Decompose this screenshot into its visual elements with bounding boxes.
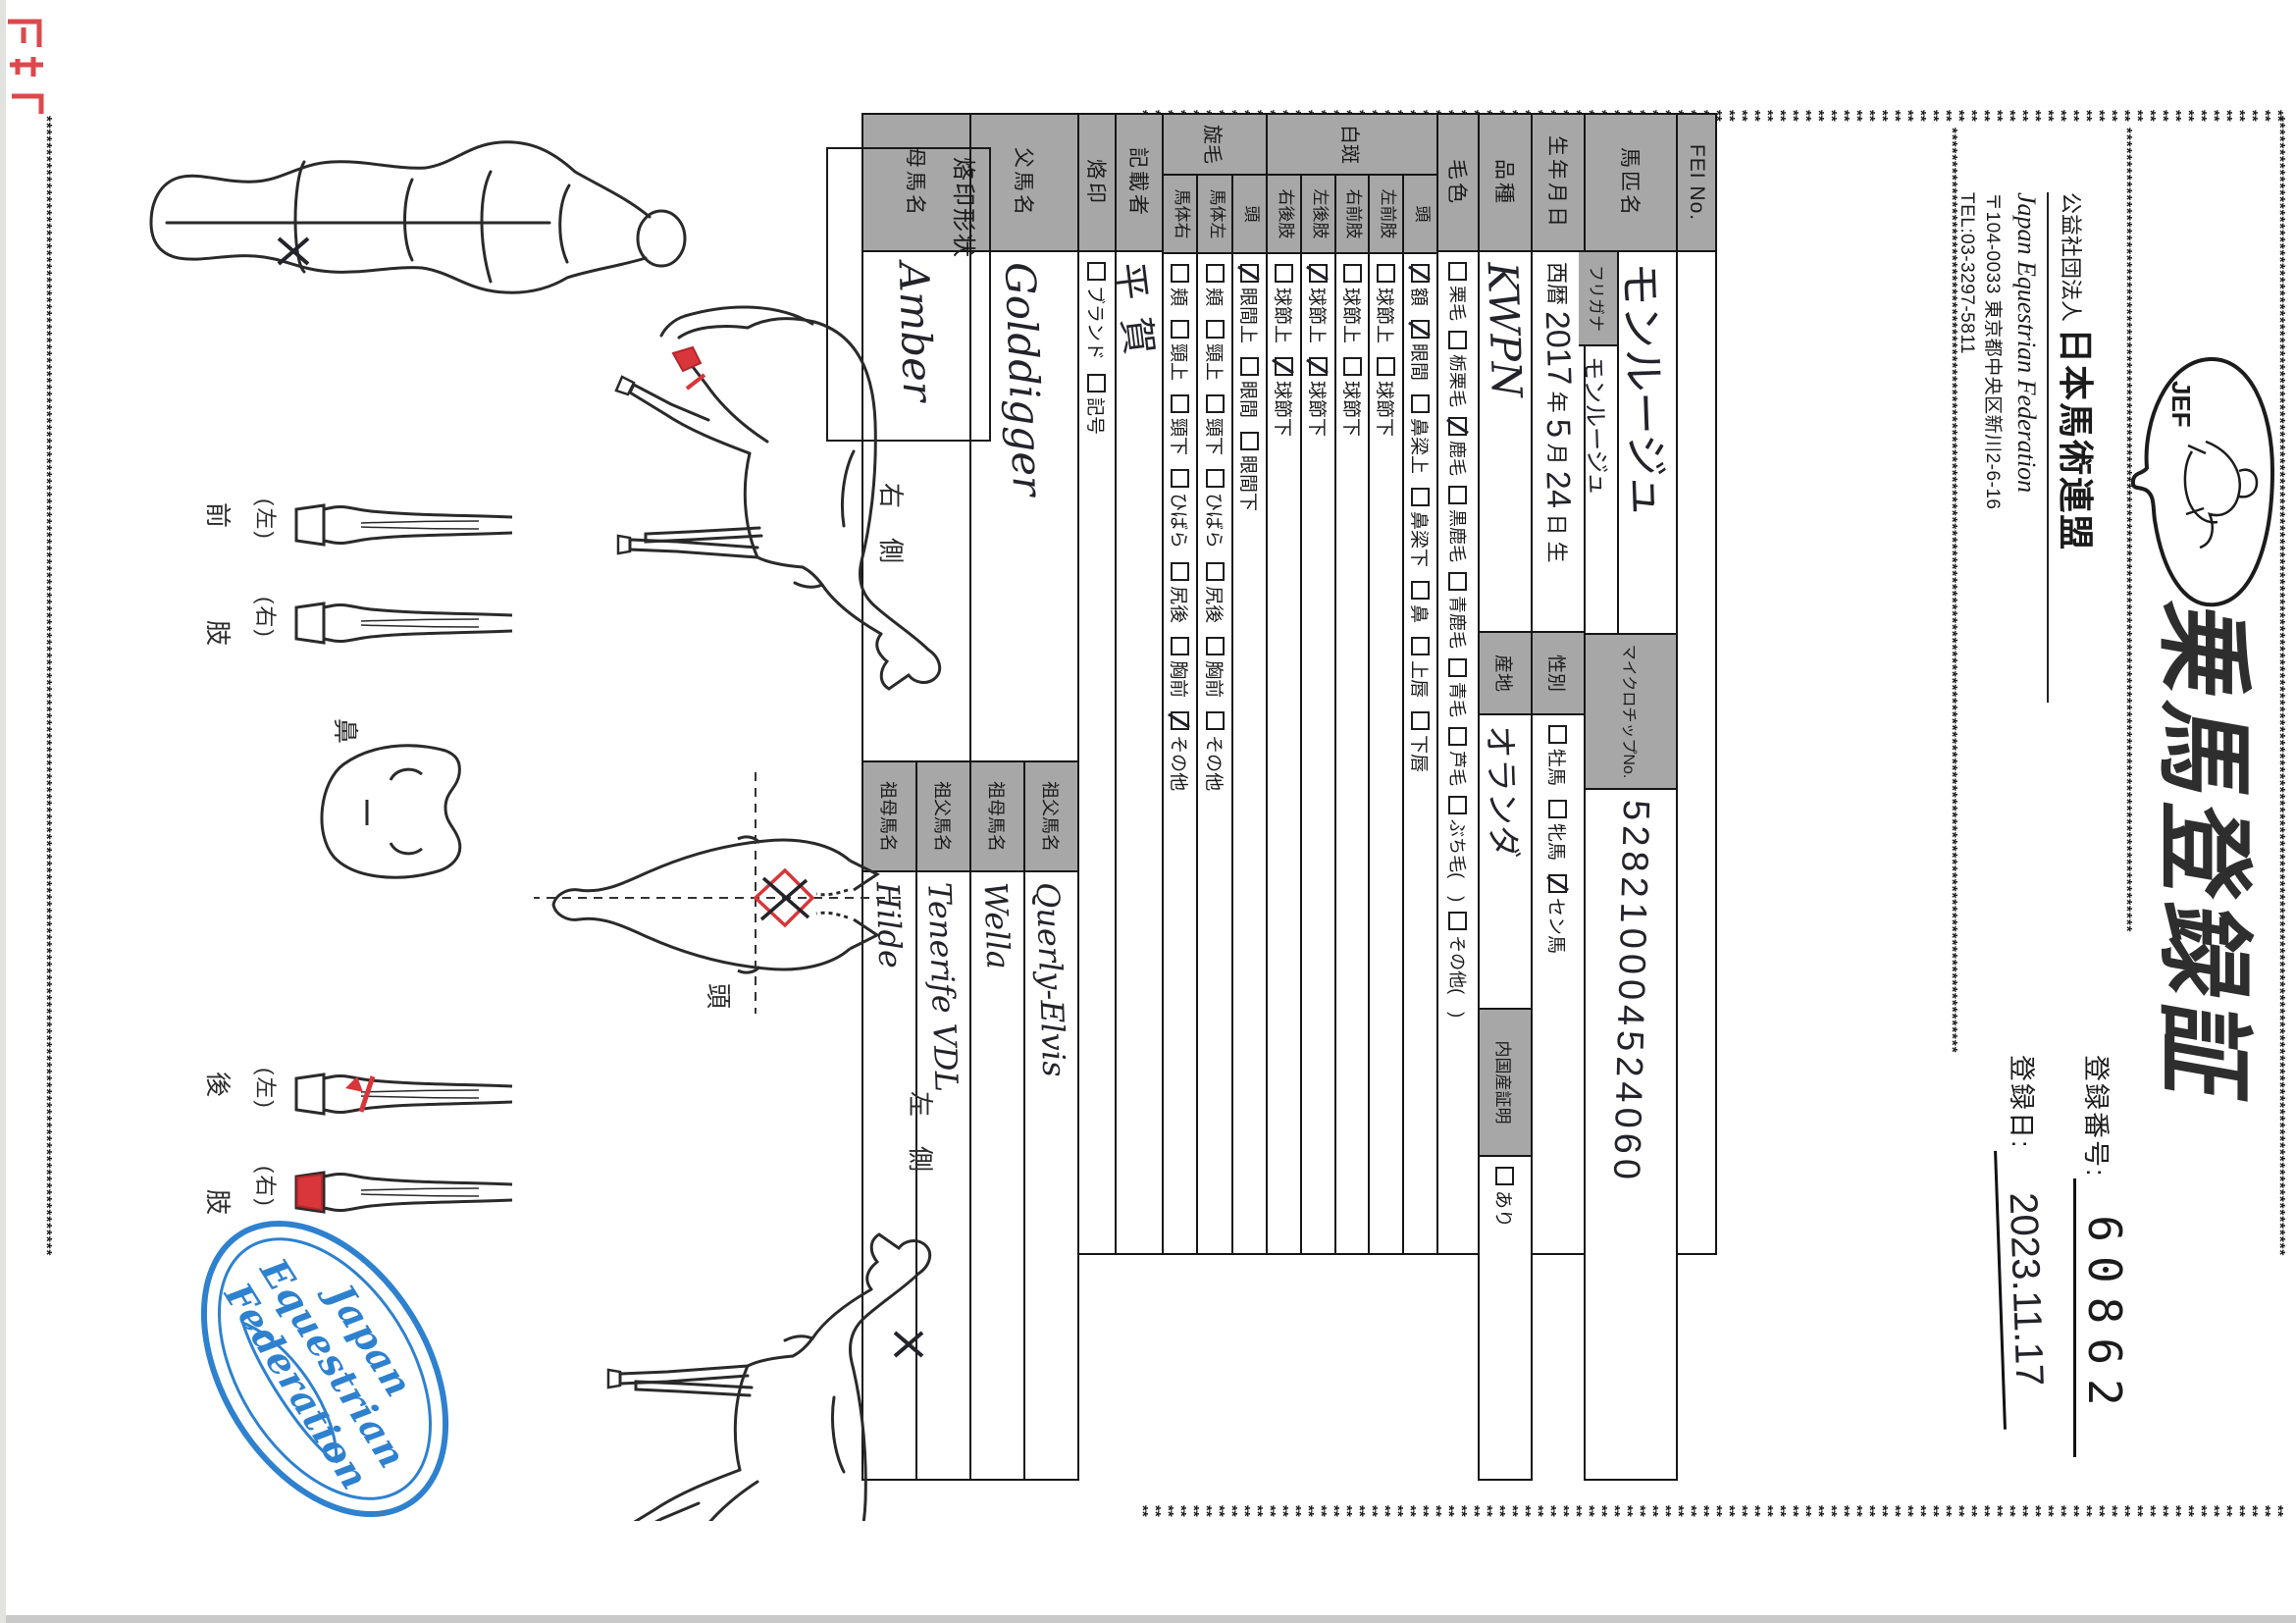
checkbox-label: 額 bbox=[1407, 288, 1434, 306]
checkbox-label: 尻後 bbox=[1202, 586, 1228, 623]
option: 眼間 bbox=[1236, 357, 1263, 418]
checkbox-label: 眼間下 bbox=[1236, 455, 1263, 511]
options: 球節上球節下 bbox=[1302, 254, 1334, 1253]
origin-label: 産地 bbox=[1480, 633, 1531, 715]
option: 尻後 bbox=[1167, 562, 1193, 623]
breed-value: KWPN bbox=[1480, 252, 1531, 633]
birth-day-suffix: 日 生 bbox=[1542, 513, 1574, 562]
org-tel: TEL:03-3297-5811 bbox=[1956, 192, 1977, 703]
checkbox bbox=[1309, 357, 1328, 376]
checkbox-label: 球節上 bbox=[1271, 288, 1297, 343]
checkbox bbox=[1171, 711, 1189, 730]
checkbox bbox=[1206, 469, 1225, 488]
org-prefix: 公益社団法人 bbox=[2059, 192, 2083, 322]
checkbox bbox=[1411, 711, 1430, 730]
birth-era: 西暦 bbox=[1542, 262, 1574, 305]
brand-option: 記号 bbox=[1084, 374, 1111, 435]
jef-logo: JEF bbox=[2122, 324, 2282, 638]
checkbox bbox=[1171, 394, 1189, 413]
checkbox bbox=[1449, 262, 1468, 281]
checkbox bbox=[1411, 637, 1430, 655]
sex-option: 牡馬 bbox=[1545, 725, 1572, 786]
handwritten-x-mark-back bbox=[279, 238, 308, 264]
row-sublabel: 馬体右 bbox=[1164, 176, 1196, 254]
checkbox-label: 尻後 bbox=[1167, 586, 1193, 623]
checkbox-label: ブランド bbox=[1084, 286, 1111, 360]
federation-info: 公益社団法人 日本馬術連盟 Japan Equestrian Federatio… bbox=[1956, 192, 2104, 703]
checkbox-label: 鼻梁下 bbox=[1407, 511, 1434, 567]
coat-option: 鹿毛 bbox=[1445, 417, 1471, 476]
grandsire-label: 祖父馬名 bbox=[1025, 762, 1077, 872]
option: 頸上 bbox=[1167, 320, 1193, 381]
checkbox bbox=[1206, 637, 1225, 655]
org-name-en: Japan Equestrian Federation bbox=[2011, 192, 2041, 703]
white-markings-row-left-fore: 左前肢 球節上球節下 bbox=[1368, 176, 1402, 1253]
table-group-whorls: 旋毛 頭 眼間上眼間眼間下 馬体左 頬頸上頸下ひばら尻後胸前その他 馬体右 bbox=[1162, 113, 1268, 1255]
row-sublabel: 頭 bbox=[1233, 176, 1266, 254]
checkbox-label: 下唇 bbox=[1407, 735, 1434, 772]
option: 胸前 bbox=[1202, 637, 1228, 698]
foreleg-left-label: (左) bbox=[251, 498, 283, 541]
birth-label: 生年月日 bbox=[1533, 115, 1584, 252]
checkbox bbox=[1206, 562, 1225, 581]
logo-balloon-outline bbox=[2133, 359, 2272, 604]
registration-number-label: 登録番号: bbox=[2073, 1055, 2117, 1178]
checkbox-label: 上唇 bbox=[1407, 660, 1434, 698]
brand-options: ブランド記号 bbox=[1079, 252, 1115, 1253]
options: 球節上球節下 bbox=[1336, 254, 1369, 1253]
option: 頬 bbox=[1202, 264, 1228, 306]
coat-option: 黒鹿毛 bbox=[1445, 486, 1471, 562]
microchip-handwritten: 528210004524060 bbox=[1604, 800, 1656, 1185]
checkbox bbox=[1206, 320, 1225, 339]
furigana-handwritten: モンルージュ bbox=[1579, 355, 1618, 496]
coat-option: その他( ) bbox=[1445, 912, 1471, 1018]
forelimb-label: 前 肢 bbox=[201, 502, 237, 679]
white-markings-group-label: 白斑 bbox=[1268, 115, 1436, 176]
checkbox-label: その他 bbox=[1202, 735, 1228, 791]
row-sublabel: 右前肢 bbox=[1336, 176, 1369, 254]
checkbox bbox=[1343, 357, 1362, 376]
scanned-certificate: ****************************************… bbox=[0, 0, 2296, 1623]
checkbox-label: 牝馬 bbox=[1545, 823, 1572, 861]
checkbox-label: 黒鹿毛 bbox=[1445, 509, 1471, 562]
option: 球節上 bbox=[1373, 264, 1399, 343]
hindlimb-label: 後 肢 bbox=[201, 1072, 237, 1248]
options: 頬頸上頸下ひばら尻後胸前その他 bbox=[1198, 254, 1230, 1253]
row-sublabel: 馬体左 bbox=[1198, 176, 1230, 254]
checkbox bbox=[1171, 264, 1189, 283]
checkbox bbox=[1206, 394, 1225, 413]
checkbox bbox=[1206, 711, 1225, 730]
checkbox bbox=[1275, 264, 1293, 283]
option: 頸下 bbox=[1167, 394, 1193, 455]
option: 鼻 bbox=[1407, 581, 1434, 623]
checkbox-label: 栗毛 bbox=[1445, 286, 1471, 321]
checkbox-label: 鼻梁上 bbox=[1407, 418, 1434, 474]
option: 眼間下 bbox=[1236, 432, 1263, 511]
option: 上唇 bbox=[1407, 637, 1434, 698]
registration-date-label: 登録日: bbox=[1999, 1055, 2043, 1150]
origin-value: オランダ bbox=[1480, 715, 1531, 1010]
recorder-signature: 平賀 bbox=[1106, 259, 1173, 375]
horse-head-front-view bbox=[534, 772, 901, 1014]
checkbox-label: その他( ) bbox=[1445, 935, 1471, 1018]
whorls-group-label: 旋毛 bbox=[1164, 115, 1266, 176]
options: 球節上球節下 bbox=[1268, 254, 1300, 1253]
registration-number-value: 60862 bbox=[2073, 1178, 2131, 1457]
checkbox bbox=[1496, 1167, 1515, 1185]
coat-option: 栃栗毛 bbox=[1445, 331, 1471, 407]
birth-year-suffix: 年 bbox=[1542, 392, 1574, 413]
recorder-label: 記載者 bbox=[1117, 115, 1162, 252]
option: 眼間上 bbox=[1236, 264, 1263, 343]
head-label: 頭 bbox=[702, 983, 738, 1011]
checkbox bbox=[1377, 264, 1395, 283]
checkbox-label: ひばら bbox=[1167, 493, 1193, 549]
checkbox bbox=[1411, 264, 1430, 283]
left-side-label: 左 側 bbox=[904, 1091, 940, 1174]
checkbox-label: 頸下 bbox=[1167, 418, 1193, 455]
checkbox bbox=[1449, 658, 1468, 677]
checkbox-label: 眼間上 bbox=[1236, 288, 1263, 343]
horse-top-view bbox=[151, 142, 685, 292]
option: その他 bbox=[1202, 711, 1228, 791]
checkbox-label: 頸上 bbox=[1202, 343, 1228, 381]
foreleg-left-diagram bbox=[296, 505, 512, 545]
checkbox-label: 胸前 bbox=[1167, 660, 1193, 698]
coat-option: 青鹿毛 bbox=[1445, 572, 1471, 649]
checkbox-label: ひばら bbox=[1202, 493, 1228, 549]
coat-option: 栗毛 bbox=[1445, 262, 1471, 321]
checkbox bbox=[1088, 374, 1107, 393]
checkbox-label: 芦毛 bbox=[1445, 751, 1471, 786]
registration-date-value: 2023.11.17 bbox=[1994, 1149, 2053, 1430]
option: 球節下 bbox=[1271, 357, 1297, 437]
options: 頬頸上頸下ひばら尻後胸前その他 bbox=[1164, 254, 1196, 1253]
checkbox-label: 頬 bbox=[1202, 288, 1228, 306]
scan-edge-strip-right bbox=[0, 1615, 2296, 1623]
checkbox-label: 頸下 bbox=[1202, 418, 1228, 455]
checkbox bbox=[1240, 264, 1259, 283]
logo-horse-scribble bbox=[2185, 442, 2257, 548]
checkbox-label: 眼間 bbox=[1236, 381, 1263, 418]
brand-label: 烙印 bbox=[1079, 115, 1115, 252]
option: ひばら bbox=[1167, 469, 1193, 549]
org-address: 〒104-0033 東京都中央区新川2-6-16 bbox=[1981, 192, 2008, 703]
sex-label: 性別 bbox=[1533, 633, 1584, 715]
option: 球節下 bbox=[1305, 357, 1331, 437]
checkbox-label: 青鹿毛 bbox=[1445, 596, 1471, 649]
option: 鼻梁下 bbox=[1407, 488, 1434, 567]
checkbox-label: 鹿毛 bbox=[1445, 441, 1471, 476]
sex-options: 牡馬牝馬セン馬 bbox=[1533, 715, 1584, 1253]
foreleg-right-label: (右) bbox=[251, 597, 283, 639]
checkbox bbox=[1449, 572, 1468, 591]
options: 眼間上眼間眼間下 bbox=[1233, 254, 1266, 1253]
microchip-value: 528210004524060 bbox=[1586, 790, 1676, 1479]
options: 球節上球節下 bbox=[1370, 254, 1402, 1253]
option: 頸下 bbox=[1202, 394, 1228, 455]
checkbox bbox=[1171, 637, 1189, 655]
checkbox-label: セン馬 bbox=[1545, 898, 1572, 954]
option: 球節上 bbox=[1271, 264, 1297, 343]
checkbox bbox=[1549, 725, 1568, 744]
checkbox-label: 栃栗毛 bbox=[1445, 354, 1471, 407]
white-markings-row-head: 頭 額眼間鼻梁上鼻梁下鼻上唇下唇 bbox=[1402, 176, 1436, 1253]
option: 頸上 bbox=[1202, 320, 1228, 381]
horse-name-handwritten: モンルージュ bbox=[1611, 261, 1683, 518]
domestic-option: あり bbox=[1492, 1167, 1519, 1228]
name-label: 馬匹名 bbox=[1586, 115, 1676, 252]
coat-option: 青毛 bbox=[1445, 658, 1471, 717]
checkbox bbox=[1449, 727, 1468, 746]
checkbox bbox=[1411, 488, 1430, 506]
checkbox bbox=[1171, 562, 1189, 581]
birth-year-handwritten: 2017 bbox=[1538, 310, 1579, 386]
row-sublabel: 右後肢 bbox=[1268, 176, 1300, 254]
checkbox-label: 眼間 bbox=[1407, 343, 1434, 381]
checkbox bbox=[1206, 264, 1225, 283]
coat-option: 芦毛 bbox=[1445, 727, 1471, 786]
option: ひばら bbox=[1202, 469, 1228, 549]
checkbox bbox=[1449, 796, 1468, 814]
checkbox-label: その他 bbox=[1167, 735, 1193, 791]
option: 球節上 bbox=[1339, 264, 1366, 343]
table-row-coat: 毛色 栗毛栃栗毛鹿毛黒鹿毛青鹿毛青毛芦毛ぶち毛( )その他( ) bbox=[1436, 113, 1480, 1255]
checkbox bbox=[1240, 432, 1259, 450]
table-row-breed: 品種 KWPN 産地 オランダ 内国産証明 あり bbox=[1478, 113, 1533, 1481]
white-markings-row-right-hind: 右後肢 球節上球節下 bbox=[1268, 176, 1300, 1253]
checkbox bbox=[1449, 417, 1468, 436]
whorls-row-body-right: 馬体右 頬頸上頸下ひばら尻後胸前その他 bbox=[1164, 176, 1196, 1253]
checkbox-label: 記号 bbox=[1084, 397, 1111, 435]
checkbox bbox=[1449, 486, 1468, 504]
checkbox-label: 胸前 bbox=[1202, 660, 1228, 698]
org-name-line: 公益社団法人 日本馬術連盟 bbox=[2047, 192, 2104, 703]
birth-month-suffix: 月 bbox=[1542, 444, 1574, 465]
checkbox-label: 鼻 bbox=[1407, 604, 1434, 623]
certificate-page: ****************************************… bbox=[0, 0, 2296, 1623]
birth-value: 西暦 2017 年 5 月 24 日 生 bbox=[1533, 252, 1584, 633]
checkbox bbox=[1377, 357, 1395, 376]
row-sublabel: 左後肢 bbox=[1302, 176, 1334, 254]
checkbox bbox=[1449, 912, 1468, 930]
checkbox-label: 球節下 bbox=[1339, 381, 1366, 437]
domestic-options: あり bbox=[1480, 1157, 1531, 1479]
horse-left-side-view bbox=[606, 1234, 930, 1521]
checkbox bbox=[1449, 331, 1468, 349]
sex-option: 牝馬 bbox=[1545, 800, 1572, 861]
fei-value bbox=[1678, 252, 1715, 1253]
checkbox bbox=[1411, 581, 1430, 600]
option: 眼間 bbox=[1407, 320, 1434, 381]
red-stamp-fragment bbox=[0, 14, 57, 122]
checkbox bbox=[1411, 320, 1430, 339]
white-markings-row-left-hind: 左後肢 球節上球節下 bbox=[1300, 176, 1334, 1253]
checkbox-label: 球節上 bbox=[1339, 288, 1366, 343]
microchip-label: マイクロチップNo. bbox=[1586, 635, 1676, 790]
sire-handwritten: Golddigger bbox=[996, 261, 1052, 497]
hindleg-left-label: (左) bbox=[251, 1068, 283, 1110]
origin-handwritten: オランダ bbox=[1479, 724, 1532, 860]
logo-jef-text: JEF bbox=[2166, 381, 2196, 428]
birth-month-handwritten: 5 bbox=[1539, 418, 1578, 438]
checkbox-label: 球節上 bbox=[1305, 288, 1331, 343]
scan-edge-strip-bottom bbox=[0, 0, 6, 1623]
checkbox bbox=[1171, 469, 1189, 488]
checkbox bbox=[1549, 800, 1568, 818]
row-sublabel: 左前肢 bbox=[1370, 176, 1402, 254]
table-row-recorder: 記載者 平賀 bbox=[1115, 113, 1164, 1255]
checkbox-label: 頬 bbox=[1167, 288, 1193, 306]
checkbox bbox=[1549, 874, 1568, 893]
handwritten-x-mark-withers bbox=[895, 1333, 922, 1356]
checkbox-label: 球節上 bbox=[1373, 288, 1399, 343]
org-name: 日本馬術連盟 bbox=[2056, 328, 2096, 551]
coat-options: 栗毛栃栗毛鹿毛黒鹿毛青鹿毛青毛芦毛ぶち毛( )その他( ) bbox=[1438, 252, 1478, 1253]
whorls-row-head: 頭 眼間上眼間眼間下 bbox=[1231, 176, 1266, 1253]
coat-option: ぶち毛( ) bbox=[1445, 796, 1471, 902]
table-row-name: 馬匹名 モンルージュ フリガナ モンルージュ マイクロチップNo. 528210… bbox=[1584, 113, 1678, 1481]
registration-date-row: 登録日: 2023.11.17 bbox=[1999, 1055, 2048, 1516]
checkbox bbox=[1240, 357, 1259, 376]
checkbox bbox=[1088, 262, 1107, 281]
grandsire-handwritten: Querly-Elvis bbox=[1029, 881, 1073, 1077]
table-group-white-markings: 白斑 頭 額眼間鼻梁上鼻梁下鼻上唇下唇 左前肢 球節上球節下 右前肢 bbox=[1266, 113, 1438, 1255]
option: 頬 bbox=[1167, 264, 1193, 306]
table-row-birth: 生年月日 西暦 2017 年 5 月 24 日 生 性別 牡馬牝馬セン馬 bbox=[1531, 113, 1586, 1255]
brand-option: ブランド bbox=[1084, 262, 1111, 360]
checkbox-label: 青毛 bbox=[1445, 682, 1471, 717]
grandsire-value: Querly-Elvis bbox=[1025, 872, 1077, 1479]
option: 胸前 bbox=[1167, 637, 1193, 698]
checkbox-label: 牡馬 bbox=[1545, 749, 1572, 786]
option: その他 bbox=[1167, 711, 1193, 791]
option: 額 bbox=[1407, 264, 1434, 306]
sex-option: セン馬 bbox=[1545, 874, 1572, 954]
option: 下唇 bbox=[1407, 711, 1434, 772]
checkbox bbox=[1309, 264, 1328, 283]
registration-block: 登録番号: 60862 登録日: 2023.11.17 bbox=[1973, 1055, 2131, 1516]
breed-handwritten: KWPN bbox=[1479, 261, 1532, 398]
checkbox bbox=[1343, 264, 1362, 283]
option: 鼻梁上 bbox=[1407, 394, 1434, 474]
registration-number-row: 登録番号: 60862 bbox=[2073, 1055, 2131, 1516]
checkbox bbox=[1411, 394, 1430, 413]
option: 球節下 bbox=[1373, 357, 1399, 437]
option: 球節下 bbox=[1339, 357, 1366, 437]
white-markings-row-right-fore: 右前肢 球節上球節下 bbox=[1334, 176, 1369, 1253]
fei-label: FEI No. bbox=[1678, 115, 1715, 252]
breed-label: 品種 bbox=[1480, 115, 1531, 252]
option: 球節上 bbox=[1305, 264, 1331, 343]
checkbox-label: 球節下 bbox=[1271, 381, 1297, 437]
recorder-value: 平賀 bbox=[1117, 252, 1162, 1253]
row-sublabel: 頭 bbox=[1404, 176, 1436, 254]
domestic-label: 内国産証明 bbox=[1480, 1010, 1531, 1157]
foreleg-right-diagram bbox=[296, 603, 512, 643]
checkbox-label: ぶち毛( ) bbox=[1445, 819, 1471, 902]
option: 尻後 bbox=[1202, 562, 1228, 623]
table-row-fei: FEI No. bbox=[1676, 113, 1717, 1255]
right-side-label: 右 側 bbox=[874, 483, 911, 565]
checkbox bbox=[1171, 320, 1189, 339]
whorls-row-body-left: 馬体左 頬頸上頸下ひばら尻後胸前その他 bbox=[1196, 176, 1230, 1253]
checkbox bbox=[1275, 357, 1293, 376]
coat-label: 毛色 bbox=[1438, 115, 1478, 252]
nose-label: 鼻 bbox=[329, 718, 365, 746]
sire-grandsire-row: 祖父馬名 Querly-Elvis bbox=[1023, 762, 1077, 1479]
checkbox-label: 球節下 bbox=[1373, 381, 1399, 437]
hindleg-left-diagram bbox=[296, 1074, 512, 1114]
furigana-value: モンルージュ bbox=[1579, 346, 1617, 633]
certificate-title: 乗馬登録証 bbox=[2142, 594, 2282, 1119]
birth-day-handwritten: 24 bbox=[1539, 470, 1578, 508]
checkbox-label: 球節下 bbox=[1305, 381, 1331, 437]
name-value-cell: モンルージュ bbox=[1619, 252, 1676, 633]
options: 額眼間鼻梁上鼻梁下鼻上唇下唇 bbox=[1404, 254, 1436, 1253]
horse-muzzle-view bbox=[322, 746, 460, 877]
checkbox-label: あり bbox=[1492, 1190, 1519, 1228]
